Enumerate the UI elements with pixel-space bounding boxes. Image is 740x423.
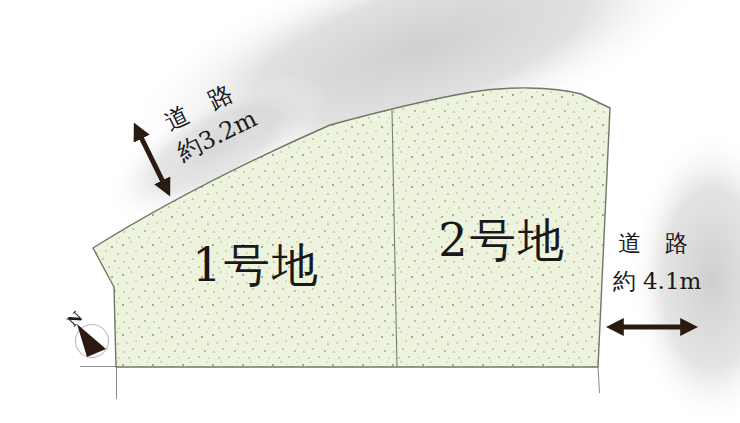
plot-2-label: 2号地 <box>438 210 565 272</box>
road-name-right: 道 路 <box>613 224 702 262</box>
road-label-right: 道 路 約 4.1m <box>613 224 702 300</box>
plot-1-label: 1号地 <box>192 235 319 297</box>
road-width-right: 約 4.1m <box>613 262 702 300</box>
plan-drawing <box>0 0 740 423</box>
site-plan-diagram: 1号地 2号地 道 路 約3.2m 道 路 約 4.1m N <box>0 0 740 423</box>
